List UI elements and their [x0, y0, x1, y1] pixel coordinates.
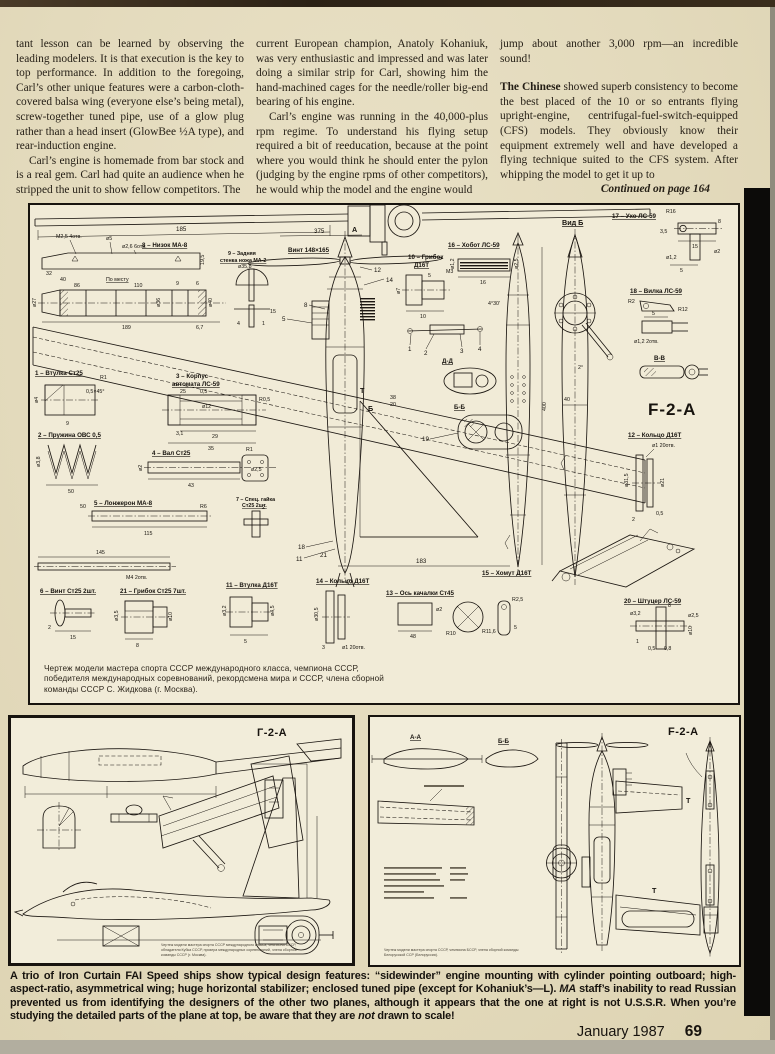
drawing-title: F-2-A [668, 726, 699, 738]
dim-label: 1 [262, 321, 265, 327]
callout-3: 3 [460, 348, 464, 355]
dia-note: ø36 [156, 298, 162, 307]
spec-table [384, 867, 468, 899]
article-column-2: current European champion, Anatoly Kohan… [256, 37, 488, 198]
part-10-cap: 10 – Грибок Д16Т М3 ø7 10 5 [396, 254, 453, 320]
article-column-3: jump about another 3,000 rpm—an incredib… [500, 37, 738, 198]
dia-note: ø7 [396, 288, 402, 294]
part-label-5: 5 – Лонжерон МА-8 [94, 500, 153, 507]
fuselage-profile-a: 4°30′ 400 40 [488, 233, 570, 575]
cross-section [37, 802, 81, 852]
dim-label: 2 [632, 517, 635, 523]
dim-label: 8 [718, 219, 721, 225]
chamfer-note: 0,5×45° [86, 389, 104, 395]
callout-12: 12 [374, 267, 381, 274]
callout-11: 11 [296, 556, 303, 563]
dia-note: ø2 [138, 465, 144, 471]
page-footer: January 198769 [440, 1023, 702, 1041]
radius-note: R2,5 [512, 597, 523, 603]
magazine-page: tant lesson can be learned by observing … [0, 7, 775, 1040]
dim-label: 375 [314, 228, 325, 235]
section-label-bb: Б-Б [498, 738, 510, 745]
dim-label: 40 [60, 277, 66, 283]
skid-bracket [103, 926, 139, 946]
part-label-3a: 3 – Корпус [176, 373, 209, 380]
radius-note: R0,5 [259, 397, 270, 403]
right-drawing: F-2-A А-А Б-Б [370, 717, 739, 965]
dia-note: ø3,2 [630, 611, 641, 617]
article-columns: tant lesson can be learned by observing … [16, 37, 738, 198]
tail-assembly-iso [552, 529, 694, 587]
svg-text:обладателя Кубка СССР, призера: обладателя Кубка СССР, призера междунаро… [161, 948, 297, 952]
not-italic: not [358, 1010, 374, 1022]
note: По месту [106, 277, 129, 283]
dia-note: ø10 [168, 612, 174, 621]
dim-label: 5 [652, 311, 655, 317]
section-mark-b: Б [368, 404, 373, 413]
t-mark: Т [652, 886, 657, 895]
t-mark: Т [686, 796, 691, 805]
dim-label: 15 [692, 244, 698, 250]
part-2-spring: 2 – Пружина ОВС 0,5 50 ø3,8 [36, 432, 101, 495]
part-16-trunk: 16 – Хобот ЛС-59 16 ø1,2 ø2,5 [448, 242, 520, 286]
pushrod-detail: 1 2 3 4 [408, 325, 483, 357]
dia-note: ø2,5 [514, 258, 520, 269]
part-label-1: 1 – Втулка Ст25 [35, 370, 83, 377]
dim-label: 5 [514, 625, 517, 631]
part-label-10a: 10 – Грибок [408, 254, 444, 261]
part-11-bushing: 11 – Втулка Д16Т ø3,2 ø4,5 5 [222, 582, 278, 645]
dim-label: 40 [564, 397, 570, 403]
part-label-17: 17 – Ухо ЛС-59 [612, 213, 657, 220]
section-dd: Д-Д [442, 358, 496, 394]
section-label-bb: Б-Б [454, 404, 466, 411]
part-label-21: 21 – Грибок Ст25 7шт. [120, 588, 186, 595]
part-21-cap: 21 – Грибок Ст25 7шт. ø3,5 ø10 8 [114, 588, 186, 649]
radius-note: R1 [246, 447, 253, 453]
section-mark-t: Т [360, 386, 365, 395]
dim-label: 38 [390, 395, 396, 401]
svg-text:команды СССР (г. Москва).: команды СССР (г. Москва). [161, 953, 206, 957]
dim-label: 8 [136, 643, 139, 649]
dim-label: 35 [208, 446, 214, 452]
part-label-8: 8 – Низок МА-8 [142, 242, 188, 249]
callout-1: 1 [408, 346, 412, 353]
dim-label: 25 [180, 389, 186, 395]
rear-wall-detail: 9 – Задняя стенка ножа МА-2 ø35,8 15 4 1 [220, 251, 276, 327]
dim-label: 3,5 [660, 229, 667, 235]
thread-note: М2,5 4отв. [56, 234, 82, 240]
dia-note: ø3,5 [114, 610, 120, 621]
svg-text:Чертеж модели мастера спорта С: Чертеж модели мастера спорта СССР, чемпи… [384, 948, 519, 952]
main-blueprint-drawing: 185 375 А Винт 148×165 М2,5 4отв. ø5 ø2,… [30, 205, 738, 651]
dia-note: ø1 20отв. [652, 443, 675, 449]
dim-label: 6 [196, 281, 199, 287]
stab-fitting [111, 805, 157, 822]
svg-text:Чертеж модели мастера спорта С: Чертеж модели мастера спорта СССР междун… [161, 943, 296, 947]
dim-label: 0,5 [200, 389, 207, 395]
spar-cross-section: 86 110 40 32 По месту 9 6 189 6,7 ø27 ø3… [32, 271, 226, 331]
dia-note: ø3,8 [36, 456, 42, 467]
angle-note: 4°30′ [488, 301, 500, 307]
dim-label: 0,8 [664, 646, 671, 651]
dia-note: ø31,5 [624, 473, 630, 487]
callout-14: 14 [386, 277, 393, 284]
paragraph: jump about another 3,000 rpm—an incredib… [500, 37, 738, 66]
radius-note: R10 [446, 631, 456, 637]
dia-note: ø2 [436, 607, 442, 613]
section-mark-a: А [352, 225, 357, 234]
part-label-4: 4 – Вал Ст25 [152, 450, 191, 457]
dia-note: ø27 [32, 298, 38, 307]
dia-note: ø3,2 [222, 605, 228, 616]
part-7-nut: 7 – Спец. гайка Ст25 2шт. 2 [236, 496, 275, 537]
paragraph: current European champion, Anatoly Kohan… [256, 37, 488, 110]
part-label-9a: 9 – Задняя [228, 251, 256, 257]
part-14-ring: 14 – Кольцо Д16Т ø30,5 3 ø1 20отв. [314, 578, 369, 651]
dim-label: 10 [420, 314, 426, 320]
dia-note: ø10 [688, 626, 694, 635]
dim-label: 1 [636, 639, 639, 645]
dim-label: 19,5 [200, 255, 206, 265]
svg-text:Белорусской ССР (Белоруссия).: Белорусской ССР (Белоруссия). [384, 953, 438, 957]
dim-label: 8 [668, 603, 671, 609]
radius-note: R6 [200, 504, 207, 510]
main-blueprint-box: 185 375 А Винт 148×165 М2,5 4отв. ø5 ø2,… [28, 203, 740, 705]
dia-note: ø1,2 [666, 255, 677, 261]
part-label-6: 6 – Винт Ст25 2шт. [40, 588, 96, 595]
dim-label: 4 [237, 321, 240, 327]
part-label-11: 11 – Втулка Д16Т [226, 582, 278, 589]
dia-note: ø1,2 2отв. [634, 339, 659, 345]
part-label-14: 14 – Кольцо Д16Т [316, 578, 369, 585]
thread-note: М4 2отв. [126, 575, 147, 581]
dim-label: 16 [480, 280, 486, 286]
dia-note: ø35,8 [238, 264, 252, 270]
view-label-b: Вид Б [562, 218, 583, 227]
part-18-fork: 18 – Вилка ЛС-59 R2 R12 5 ø1,2 2отв. [628, 288, 688, 345]
dia-note: ø12 [202, 404, 211, 410]
dia-note: ø1 20отв. [342, 645, 365, 651]
top-view [23, 739, 341, 798]
wing-plan-view: R1 [33, 327, 645, 503]
dim-label: 29 [212, 434, 218, 440]
dim-label: 3,1 [176, 431, 183, 437]
section-aa: А-А [372, 734, 482, 769]
dia-note: ø2 [714, 249, 720, 255]
fuselage-profile-b: Вид Б 2° [554, 218, 613, 585]
part-label-10b: Д16Т [414, 262, 429, 269]
dim-label: 115 [144, 531, 152, 537]
callout-4: 4 [478, 346, 482, 353]
photo-caption: A trio of Iron Curtain FAI Speed ships s… [10, 970, 736, 1024]
dim-label: 6,7 [196, 325, 203, 331]
dim-label: 20 [390, 402, 396, 408]
dim-label: 50 [80, 504, 86, 510]
radius-note: R2 [628, 299, 635, 305]
page-number: 69 [685, 1023, 702, 1040]
callout-18: 18 [298, 544, 305, 551]
dim-label: 110 [134, 283, 142, 289]
part-label-15: 15 – Хомут Д16Т [482, 570, 532, 577]
left-wing-panel [378, 785, 474, 825]
dia-note: ø5 [106, 236, 112, 242]
prop-label: Винт 148×165 [288, 247, 330, 254]
dim-label: 145 [96, 550, 105, 556]
tiny-caption: Чертеж модели мастера спорта СССР междун… [161, 943, 297, 957]
radius-note: R11,6 [482, 629, 496, 635]
scan-edge-right-outer [770, 7, 775, 1040]
section-lead: The Chinese [500, 81, 561, 93]
pylon-plate-view: М2,5 4отв. ø5 ø2,6 6отв. 19,5 8 – Низок … [42, 234, 206, 269]
part-3-automat-body: 3 – Корпус автомата ЛС-59 25 0,5 ø12 3,1… [162, 373, 270, 452]
drawing-title: Г-2-А [257, 727, 287, 739]
dim-label: 2 [48, 625, 51, 631]
section-label-dd: Д-Д [442, 358, 453, 365]
ma-italic: MA [559, 983, 576, 995]
dim-label: 5 [428, 273, 431, 279]
dim-label: 86 [74, 283, 80, 289]
dia-note: ø2,5 [688, 613, 699, 619]
dim-label: 48 [410, 634, 416, 640]
part-label-12: 12 – Кольцо Д16Т [628, 432, 681, 439]
dim-label: 0,5 [656, 511, 663, 517]
part-17-ear: 17 – Ухо ЛС-59 R16 3,5 8 15 ø1,2 ø2 5 [612, 209, 722, 274]
dia-note: ø1,2 [450, 258, 456, 269]
side-profile [686, 737, 719, 957]
part-4-shaft: 4 – Вал Ст25 43 ø2 R1 ø2,5 [138, 447, 276, 489]
callout-19: 19 [422, 436, 429, 443]
callout-8: 8 [304, 302, 308, 309]
callout-5: 5 [282, 316, 286, 323]
dia-note: ø4 [34, 397, 40, 403]
part-12-ring: 12 – Кольцо Д16Т ø1 20отв. ø31,5 ø21 0,5… [624, 432, 681, 523]
angle-note: 2° [578, 365, 583, 371]
part-label-16: 16 – Хобот ЛС-59 [448, 242, 500, 249]
radius-note: R1 [100, 375, 107, 381]
wing-top-view [546, 739, 577, 953]
dim-label: 5 [680, 268, 683, 274]
dim-label: 15 [70, 635, 76, 641]
dim-label: 3 [322, 645, 325, 651]
dim-label: 183 [416, 558, 427, 565]
part-label-7a: 7 – Спец. гайка [236, 496, 275, 503]
paragraph: Carl’s engine is homemade from bar stock… [16, 154, 244, 198]
part-20-fitting: 20 – Штуцер ЛС-59 ø3,2 8 ø2,5 ø10 1 0,5 … [624, 598, 699, 651]
fuselage-top-view [556, 733, 648, 951]
paragraph: The Chinese showed superb consistency to… [500, 80, 738, 182]
part-13-axle: 13 – Ось качалки Ст45 48 ø2 R10 R11,6 R2… [386, 590, 523, 640]
article-column-1: tant lesson can be learned by observing … [16, 37, 244, 198]
dim-label: 50 [68, 489, 74, 495]
isometric-wing [159, 756, 303, 871]
dim-label: 32 [46, 271, 52, 277]
part-6-screw: 6 – Винт Ст25 2шт. 15 2 [40, 588, 96, 641]
main-drawing-caption: Чертеж модели мастера спорта СССР междун… [44, 664, 624, 696]
left-drawing: Г-2-А [11, 718, 352, 963]
part-label-2: 2 – Пружина ОВС 0,5 [38, 432, 101, 439]
dim-label: 9 [176, 281, 179, 287]
radius-note: R12 [678, 307, 688, 313]
dia-note: ø21 [660, 478, 666, 487]
dia-note: ø30,5 [314, 607, 320, 621]
dia-note: ø40 [208, 298, 214, 307]
section-label-vv: В-В [654, 355, 666, 362]
part-label-20: 20 – Штуцер ЛС-59 [624, 598, 682, 605]
left-drawing-box: Г-2-А [8, 715, 355, 966]
scan-edge-right [744, 188, 771, 1016]
continued-notice: Continued on page 164 [500, 182, 738, 197]
right-drawing-box: F-2-A А-А Б-Б [368, 715, 741, 967]
dim-label: 15 [270, 309, 276, 315]
paragraph: Carl’s engine was running in the 40,000-… [256, 110, 488, 198]
dim-label: 5 [244, 639, 247, 645]
fuselage-side-view-main: 183 12 14 8 5 18 11 21 Т Б 38 20 [248, 231, 510, 587]
callout-2: 2 [424, 350, 428, 357]
part-5-spar: 5 – Лонжерон МА-8 115 R6 50 145 М4 2отв. [34, 500, 212, 581]
part-label-3b: автомата ЛС-59 [172, 381, 220, 388]
dim-label: 189 [122, 325, 131, 331]
dia-note: ø4,5 [270, 605, 276, 616]
tiny-caption: Чертеж модели мастера спорта СССР, чемпи… [384, 948, 519, 957]
dia-note: ø2,5 [251, 467, 262, 473]
section-bb: Б-Б [486, 738, 538, 767]
drawing-title: F-2-A [648, 400, 696, 419]
issue-date: January 1987 [577, 1024, 665, 1040]
scan-edge-top [0, 0, 775, 7]
dim-label: 2 [262, 505, 265, 511]
dim-label: 0,5 [648, 646, 655, 651]
dim-label: 400 [542, 402, 548, 411]
section-vv: В-В [640, 355, 708, 379]
dim-label: 185 [176, 226, 187, 233]
part-label-13: 13 – Ось качалки Ст45 [386, 590, 454, 597]
radius-note: R16 [666, 209, 676, 215]
part-label-18: 18 – Вилка ЛС-59 [630, 288, 683, 295]
horizontal-stab-upper: Т [616, 781, 691, 813]
scan-edge-bottom [0, 1040, 775, 1054]
dim-label: 9 [66, 421, 69, 427]
section-label-aa: А-А [410, 734, 422, 741]
paragraph: tant lesson can be learned by observing … [16, 37, 244, 154]
dim-label: 43 [188, 483, 194, 489]
